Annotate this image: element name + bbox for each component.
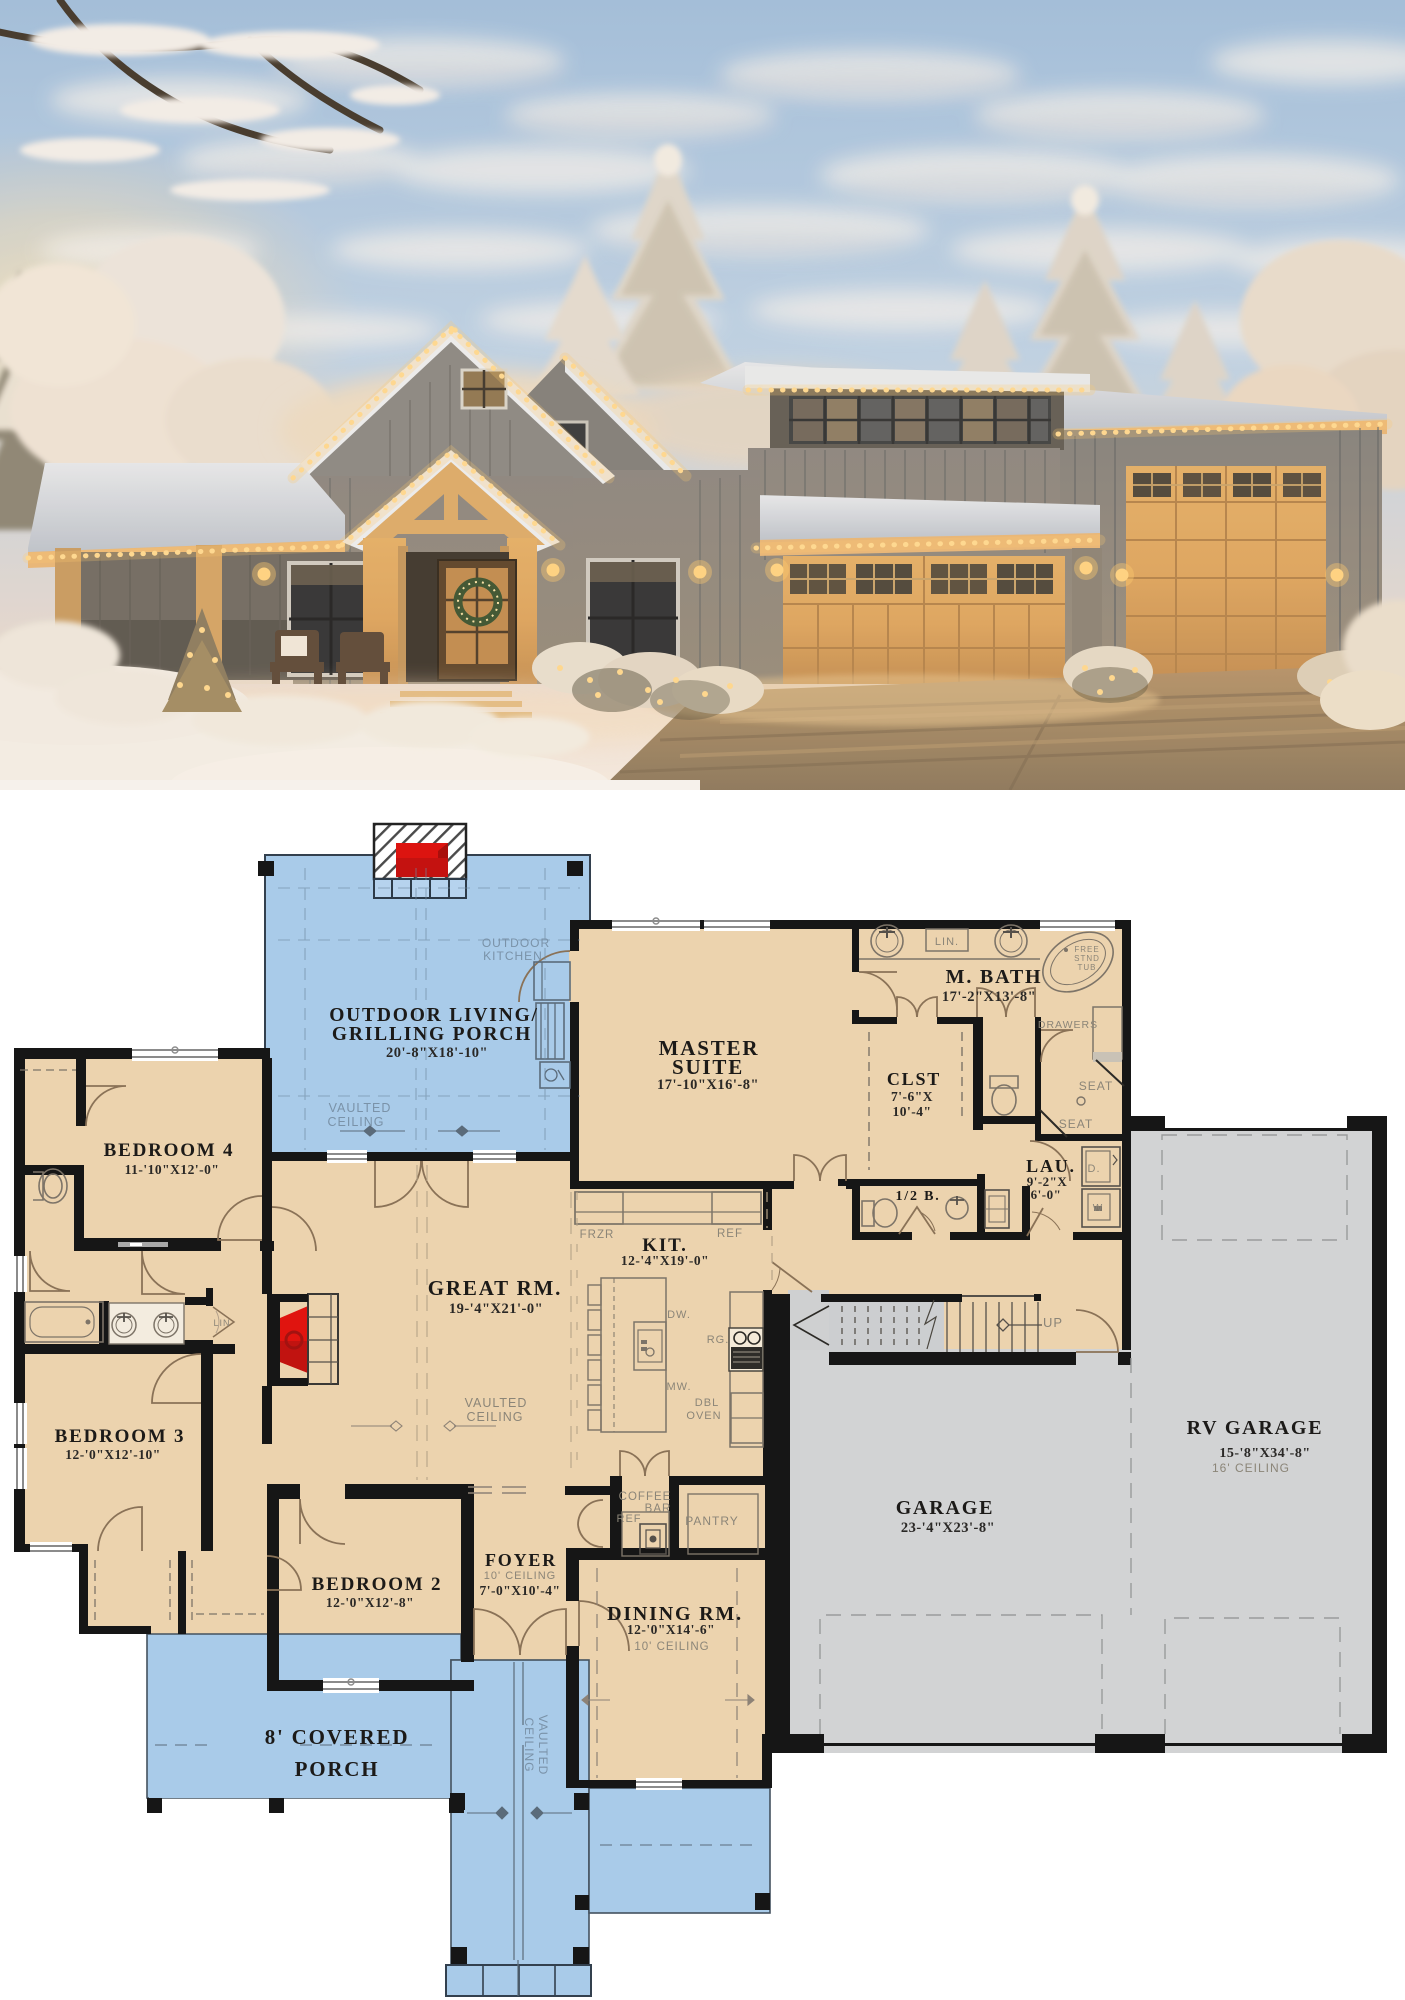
svg-text:23-'4"X23'-8": 23-'4"X23'-8" xyxy=(901,1520,995,1536)
svg-text:GARAGE: GARAGE xyxy=(896,1497,995,1519)
svg-text:12-'4"X19'-0": 12-'4"X19'-0" xyxy=(621,1253,709,1268)
svg-text:11-'10"X12'-0": 11-'10"X12'-0" xyxy=(125,1162,220,1177)
svg-text:W: W xyxy=(1093,1203,1103,1214)
svg-text:DW.: DW. xyxy=(667,1309,691,1321)
svg-text:17'-10"X16'-8": 17'-10"X16'-8" xyxy=(657,1077,759,1093)
svg-text:REF: REF xyxy=(717,1228,743,1240)
svg-text:20'-8"X18'-10": 20'-8"X18'-10" xyxy=(386,1045,488,1061)
svg-text:STND: STND xyxy=(1074,954,1100,963)
svg-text:CLST: CLST xyxy=(887,1069,941,1089)
svg-text:FRZR: FRZR xyxy=(580,1229,615,1241)
svg-text:19-'4"X21'-0": 19-'4"X21'-0" xyxy=(449,1301,543,1317)
svg-text:6'-0": 6'-0" xyxy=(1031,1187,1062,1202)
svg-text:10' CEILING: 10' CEILING xyxy=(484,1570,556,1582)
svg-text:VAULTED: VAULTED xyxy=(329,1101,392,1115)
svg-text:7'-0"X10'-4": 7'-0"X10'-4" xyxy=(480,1583,561,1598)
svg-text:MW.: MW. xyxy=(667,1381,692,1393)
svg-text:KITCHEN: KITCHEN xyxy=(483,949,543,963)
svg-text:OVEN: OVEN xyxy=(686,1410,721,1422)
svg-text:7'-6"X: 7'-6"X xyxy=(891,1089,933,1104)
svg-text:RG.: RG. xyxy=(707,1334,730,1346)
svg-text:SEAT: SEAT xyxy=(1059,1117,1093,1131)
svg-text:DBL: DBL xyxy=(695,1397,719,1409)
svg-text:RV GARAGE: RV GARAGE xyxy=(1187,1417,1324,1439)
svg-text:8' COVERED: 8' COVERED xyxy=(265,1725,410,1749)
svg-text:LIN: LIN xyxy=(213,1318,230,1328)
svg-text:D.: D. xyxy=(1088,1163,1101,1175)
svg-text:FOYER: FOYER xyxy=(485,1550,557,1570)
svg-text:BEDROOM 4: BEDROOM 4 xyxy=(104,1140,235,1161)
svg-text:M. BATH: M. BATH xyxy=(946,966,1043,988)
svg-text:VAULTED: VAULTED xyxy=(536,1715,550,1776)
svg-text:16' CEILING: 16' CEILING xyxy=(1212,1461,1290,1475)
svg-text:SEAT: SEAT xyxy=(1079,1079,1113,1093)
svg-text:OUTDOOR: OUTDOOR xyxy=(482,936,550,950)
svg-text:BAR: BAR xyxy=(645,1503,672,1515)
svg-text:UP: UP xyxy=(1043,1315,1063,1330)
svg-text:CEILING: CEILING xyxy=(522,1717,536,1772)
svg-text:10'-4": 10'-4" xyxy=(893,1104,932,1119)
svg-text:12-'0"X14'-6": 12-'0"X14'-6" xyxy=(627,1622,715,1637)
svg-text:1/2 B.: 1/2 B. xyxy=(895,1189,940,1204)
svg-text:GREAT RM.: GREAT RM. xyxy=(428,1276,562,1300)
svg-text:CEILING: CEILING xyxy=(327,1115,384,1129)
svg-text:SUITE: SUITE xyxy=(672,1055,744,1079)
svg-text:12-'0"X12'-10": 12-'0"X12'-10" xyxy=(65,1447,160,1462)
svg-text:TUB: TUB xyxy=(1078,963,1097,972)
svg-text:PANTRY: PANTRY xyxy=(685,1514,739,1528)
svg-text:17'-2"X13'-8": 17'-2"X13'-8" xyxy=(942,989,1036,1005)
svg-text:DRAWERS: DRAWERS xyxy=(1038,1019,1098,1031)
svg-text:VAULTED: VAULTED xyxy=(465,1396,528,1410)
svg-text:GRILLING PORCH: GRILLING PORCH xyxy=(332,1024,532,1045)
svg-text:LIN.: LIN. xyxy=(935,936,959,948)
svg-text:LAU.: LAU. xyxy=(1026,1156,1076,1176)
svg-text:REF: REF xyxy=(617,1513,642,1525)
svg-text:FREE: FREE xyxy=(1074,945,1099,954)
svg-text:OUTDOOR LIVING/: OUTDOOR LIVING/ xyxy=(329,1005,539,1026)
svg-text:PORCH: PORCH xyxy=(295,1757,380,1781)
svg-text:12-'0"X12'-8": 12-'0"X12'-8" xyxy=(326,1595,414,1610)
svg-text:COFFEE: COFFEE xyxy=(619,1491,672,1503)
svg-text:15-'8"X34'-8": 15-'8"X34'-8" xyxy=(1219,1446,1310,1461)
svg-text:BEDROOM 2: BEDROOM 2 xyxy=(312,1574,443,1595)
svg-text:CEILING: CEILING xyxy=(466,1410,523,1424)
svg-text:BEDROOM 3: BEDROOM 3 xyxy=(55,1426,186,1447)
svg-text:10' CEILING: 10' CEILING xyxy=(634,1641,709,1653)
